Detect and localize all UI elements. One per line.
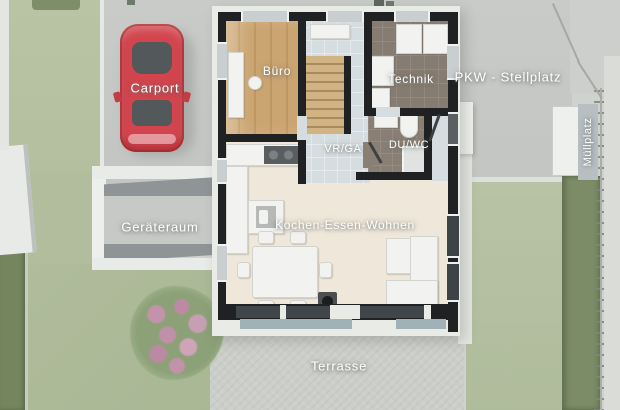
staircase xyxy=(306,56,344,134)
car-rear-window xyxy=(132,42,172,74)
kitchen-counter-left xyxy=(226,166,248,254)
neighbor-edge-top-left xyxy=(0,0,9,150)
muellplatz-bin-box xyxy=(552,106,580,176)
label-du-wc: DU/WC xyxy=(389,139,429,151)
door-gap-entry-hall xyxy=(432,171,448,181)
glass-south-1 xyxy=(236,306,280,318)
stair-side-wall xyxy=(344,56,351,134)
label-kochen-essen-wohnen: Kochen-Essen-Wohnen xyxy=(275,218,415,232)
cooktop xyxy=(264,146,298,164)
curb-right xyxy=(466,177,570,182)
car-windshield xyxy=(132,100,172,126)
label-muellplatz: Müllplatz xyxy=(582,118,594,167)
label-technik: Technik xyxy=(388,72,434,86)
geraeteraum-edge-bottom xyxy=(92,258,218,270)
curb-left xyxy=(100,0,104,174)
wall-south-white-segment xyxy=(330,305,360,319)
sofa-chaise xyxy=(386,238,412,274)
desk xyxy=(228,52,244,118)
technik-appliance-1 xyxy=(396,24,422,54)
path-right-edge xyxy=(604,56,620,410)
window-sill-south-2 xyxy=(396,319,446,331)
dining-chair-1 xyxy=(258,231,274,244)
technik-appliance-4 xyxy=(370,88,390,108)
car-front-highlight xyxy=(128,134,176,144)
window-west-buero xyxy=(217,42,227,80)
label-vr-ga: VR/GA xyxy=(324,143,361,155)
label-pkw-stellplatz: PKW - Stellplatz xyxy=(455,70,562,85)
label-carport: Carport xyxy=(131,81,180,96)
window-east-living-2 xyxy=(447,262,459,302)
glass-south-3 xyxy=(360,306,424,318)
wall-buero-south xyxy=(218,134,306,142)
window-north-buero xyxy=(241,11,289,22)
dining-chair-5 xyxy=(237,262,250,278)
label-buero: Büro xyxy=(263,64,291,78)
office-chair xyxy=(248,76,262,90)
fence-right-rail xyxy=(600,88,602,410)
wall-technik-west xyxy=(364,12,372,116)
hedge-left xyxy=(0,236,26,410)
floorplan-scene: Carport PKW - Stellplatz Müllplatz Büro … xyxy=(0,0,620,410)
glass-south-2 xyxy=(286,306,330,318)
window-sill-south-1 xyxy=(240,319,352,331)
kitchen-sink-basin xyxy=(259,210,268,224)
window-west-kitchen xyxy=(217,158,227,184)
wall-kitchen-stub xyxy=(298,142,306,184)
window-east-living-1 xyxy=(447,214,459,258)
window-west-living xyxy=(217,244,227,282)
mullion-south-2 xyxy=(424,305,431,319)
entrance-door xyxy=(448,112,458,146)
dining-chair-2 xyxy=(290,231,306,244)
dining-table xyxy=(252,246,318,298)
hedge-top xyxy=(32,0,80,10)
technik-appliance-2 xyxy=(423,24,448,54)
label-geraeteraum: Geräteraum xyxy=(121,220,198,235)
dining-chair-6 xyxy=(319,262,332,278)
toilet xyxy=(400,114,418,138)
window-north-hall xyxy=(326,11,364,22)
hall-cabinet xyxy=(310,24,350,39)
fence-left xyxy=(25,236,28,410)
hedge-fragment-1 xyxy=(127,0,135,5)
door-gap-buero xyxy=(297,116,307,140)
label-terrasse: Terrasse xyxy=(311,359,367,374)
grass-right xyxy=(466,180,572,410)
geraeteraum-edge-top xyxy=(92,166,218,179)
door-gap-technik xyxy=(376,107,400,117)
window-north-technik xyxy=(394,11,430,22)
